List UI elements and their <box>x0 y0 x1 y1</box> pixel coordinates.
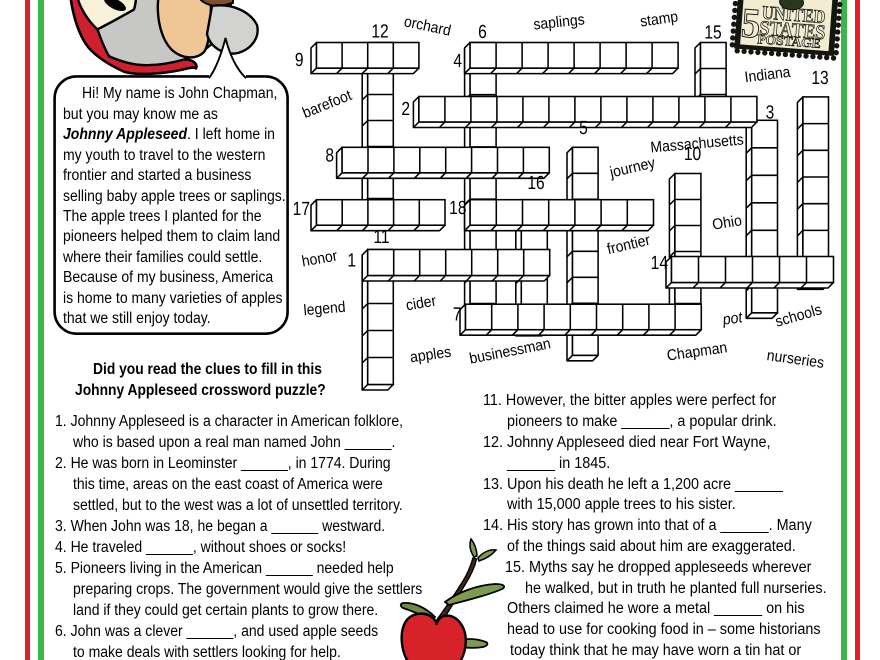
svg-text:Ohio: Ohio <box>711 212 743 233</box>
svg-text:17: 17 <box>293 199 310 220</box>
svg-text:6: 6 <box>478 22 487 43</box>
svg-text:1: 1 <box>347 251 356 272</box>
svg-text:18: 18 <box>449 198 466 219</box>
svg-text:12: 12 <box>371 22 388 43</box>
svg-text:11: 11 <box>373 227 389 248</box>
svg-text:Indiana: Indiana <box>744 64 792 87</box>
svg-text:apples: apples <box>409 344 453 367</box>
svg-text:4: 4 <box>453 51 462 72</box>
svg-text:stamp: stamp <box>639 8 679 30</box>
svg-text:honor: honor <box>300 248 338 271</box>
svg-text:frontier: frontier <box>605 232 651 258</box>
svg-text:2: 2 <box>401 99 410 120</box>
svg-text:16: 16 <box>527 173 544 194</box>
svg-text:Chapman: Chapman <box>666 339 729 364</box>
svg-text:9: 9 <box>295 50 304 71</box>
svg-text:8: 8 <box>325 146 334 167</box>
svg-text:legend: legend <box>303 299 346 320</box>
svg-text:journey: journey <box>607 154 657 181</box>
svg-text:13: 13 <box>811 68 828 89</box>
svg-text:cider: cider <box>405 292 438 314</box>
svg-text:pot: pot <box>721 309 744 329</box>
svg-text:barefoot: barefoot <box>300 87 355 122</box>
svg-text:saplings: saplings <box>533 11 586 33</box>
svg-text:businessman: businessman <box>468 335 552 367</box>
svg-text:7: 7 <box>453 305 462 326</box>
svg-text:14: 14 <box>651 253 669 274</box>
svg-text:nurseries: nurseries <box>766 347 826 372</box>
svg-text:orchard: orchard <box>402 13 452 40</box>
svg-text:schools: schools <box>773 301 824 331</box>
svg-text:3: 3 <box>766 103 775 124</box>
svg-text:15: 15 <box>704 23 721 44</box>
svg-text:5: 5 <box>579 118 588 139</box>
